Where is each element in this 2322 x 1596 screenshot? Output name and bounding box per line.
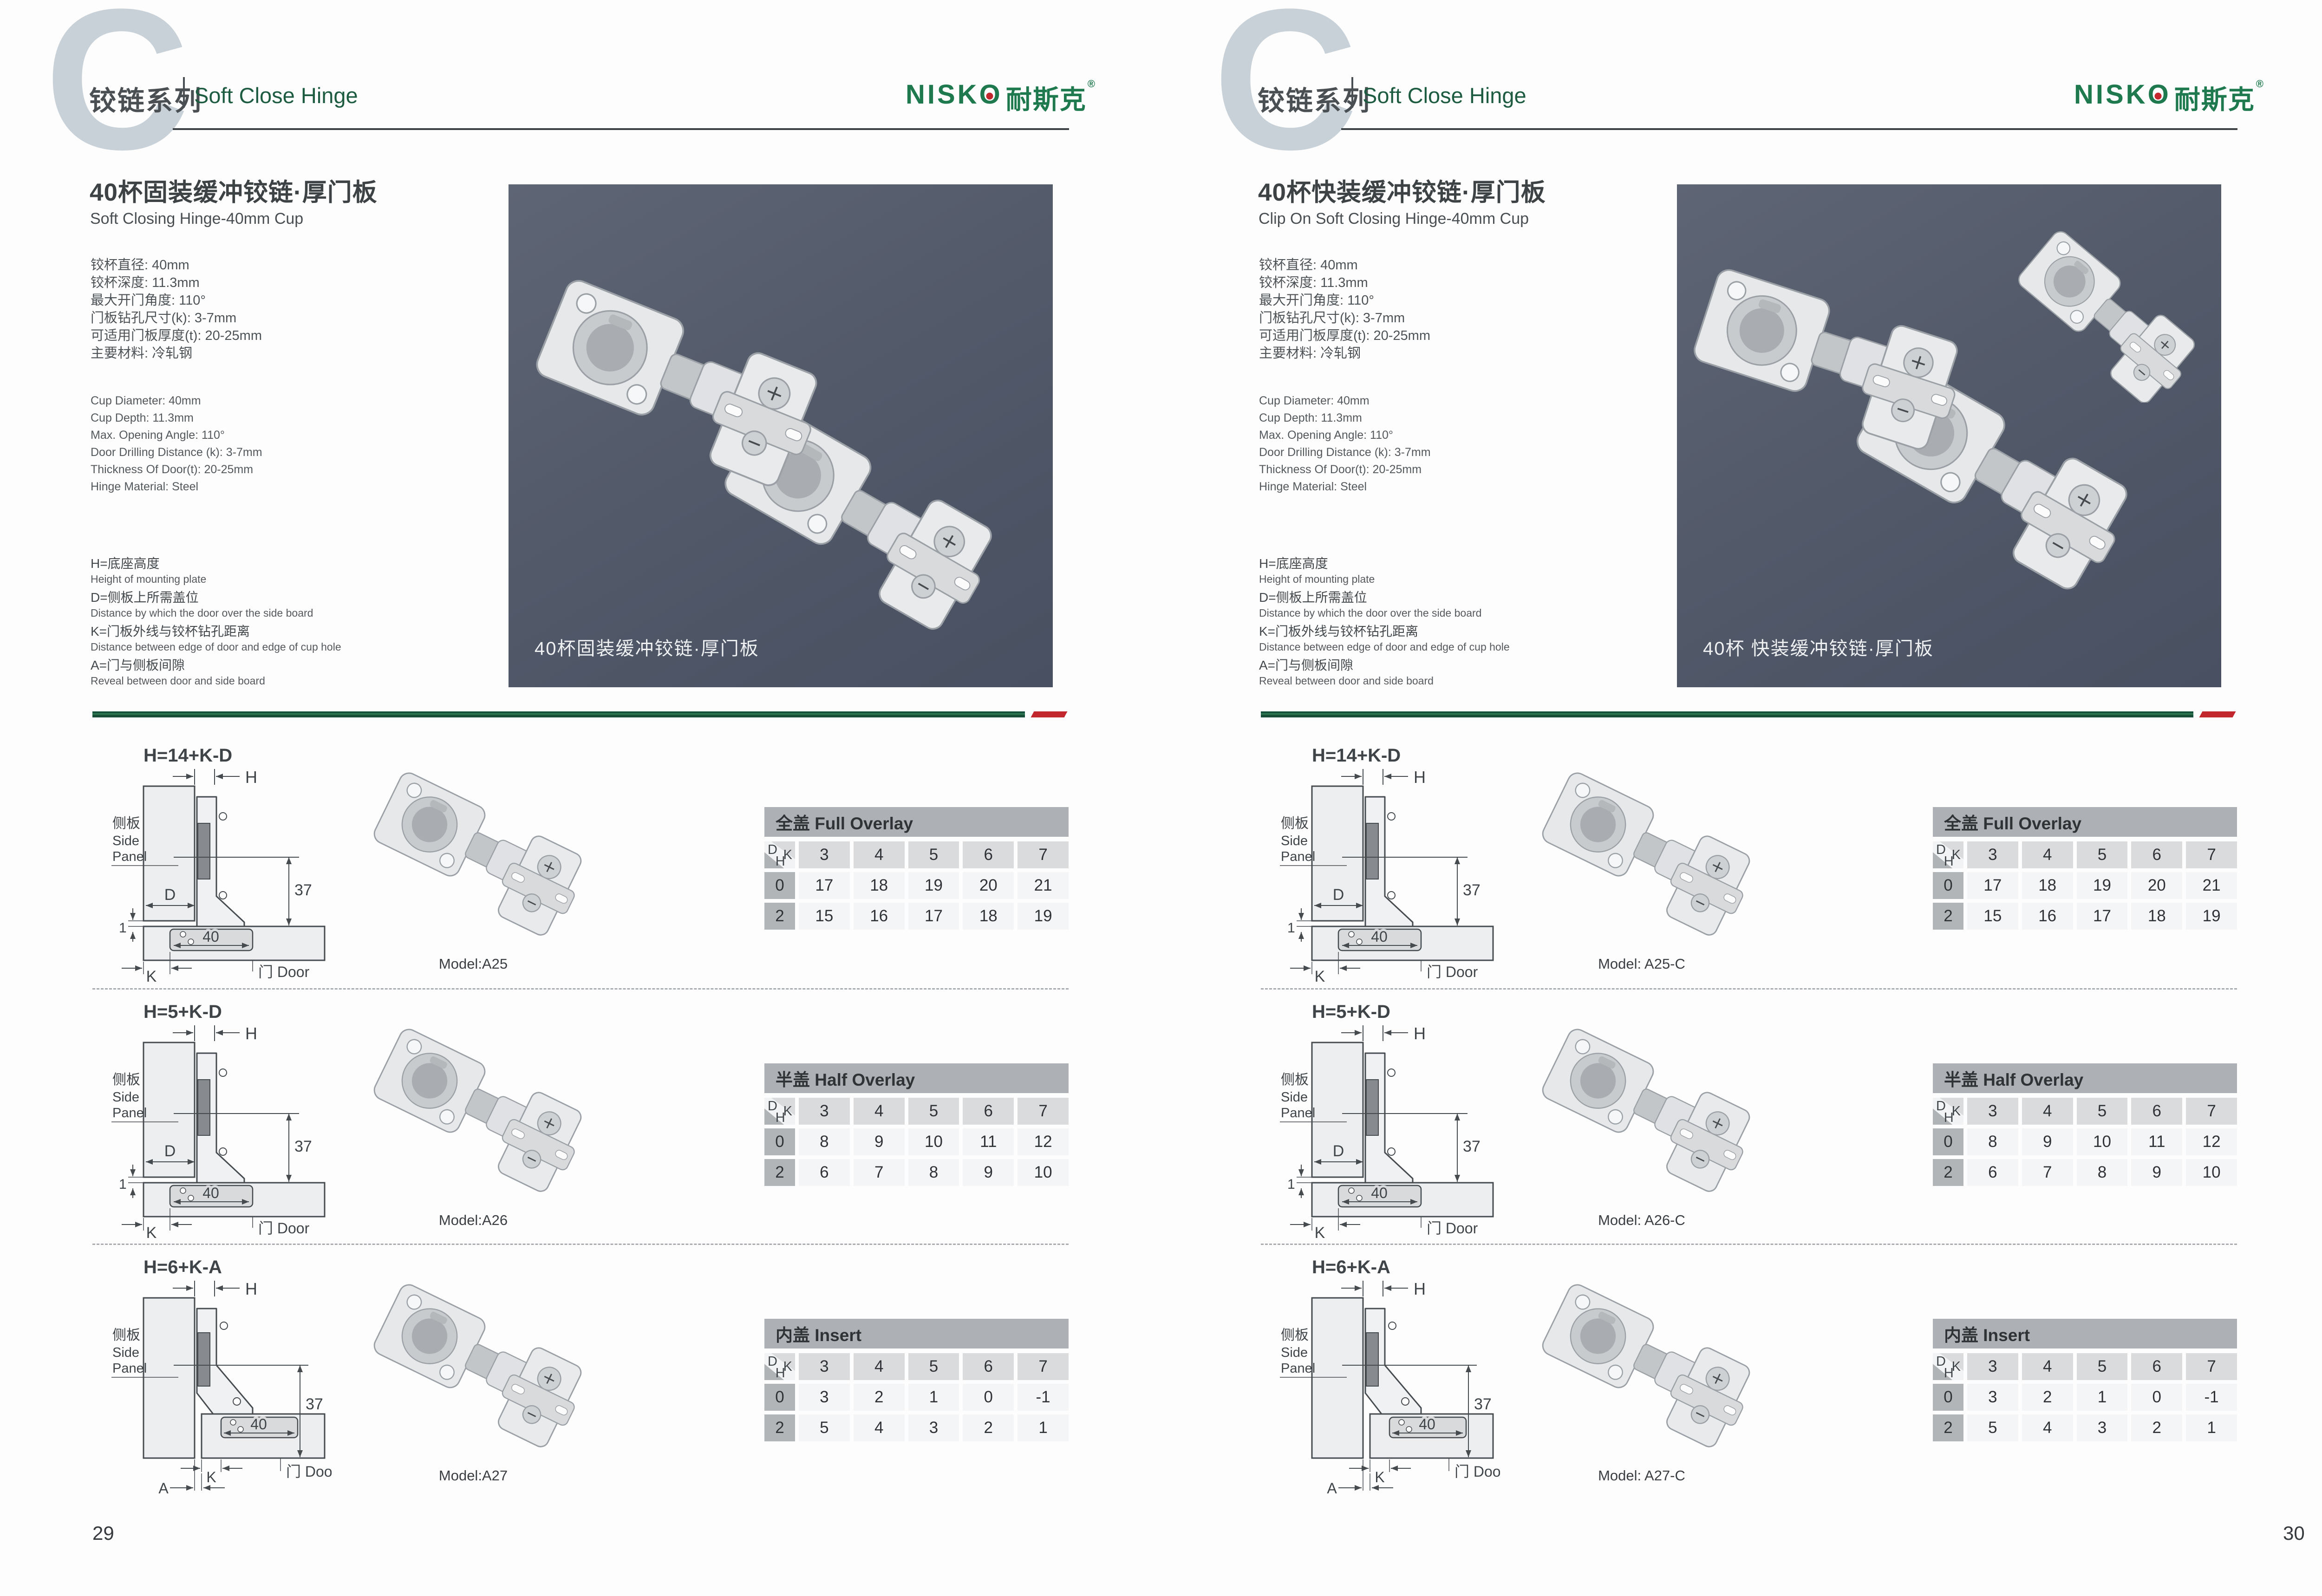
product-photo: 40杯 快装缓冲铰链·厚门板 — [1677, 184, 2221, 687]
corner-label-h: H — [1944, 1110, 1954, 1125]
hinge-product-render — [1519, 756, 1765, 946]
table-cell: 8 — [908, 1159, 959, 1186]
corner-label-h: H — [776, 1366, 785, 1380]
table-row-header: 2 — [764, 1159, 795, 1186]
table-grid: DKH345670891011122678910 — [764, 1098, 1069, 1186]
table-grid: DKH345670171819202121516171819 — [1933, 841, 2237, 930]
svg-text:40: 40 — [202, 928, 219, 945]
page-number: 30 — [2283, 1522, 2305, 1544]
svg-text:40: 40 — [202, 1185, 219, 1201]
hinge-product-render — [350, 756, 596, 946]
svg-text:1: 1 — [119, 1177, 127, 1192]
table-cell: 1 — [1018, 1414, 1069, 1441]
table-col-header: 3 — [1967, 841, 2018, 868]
catalog-page: C 铰链系列 Soft Close Hinge NISK O 耐斯克 ® 40杯… — [1168, 0, 2322, 1596]
dashed-separator — [1261, 988, 2237, 990]
table-corner-cell: DKH — [1933, 1353, 1963, 1380]
table-cell: 10 — [2186, 1159, 2237, 1186]
product-section: H=6+K-AH4037KA门 Door侧板SidePanelModel:A27… — [92, 1254, 1069, 1495]
svg-text:H: H — [245, 1279, 257, 1298]
spec-line-en: Hinge Material: Steel — [91, 478, 262, 495]
table-cell: 16 — [2022, 903, 2073, 930]
model-label: Model:A25 — [350, 956, 596, 972]
table-cell: 9 — [2131, 1159, 2182, 1186]
legend-pair: H=底座高度Height of mounting plate — [91, 555, 341, 586]
table-cell: 2 — [963, 1414, 1014, 1441]
table-cell: 0 — [963, 1384, 1014, 1411]
table-cell: 1 — [2077, 1384, 2128, 1411]
brand-logo-latin: NISK — [2074, 79, 2148, 110]
model-label: Model: A25-C — [1519, 956, 1765, 972]
header-separator — [1351, 77, 1353, 108]
header-separator — [183, 77, 185, 108]
svg-text:1: 1 — [119, 920, 127, 936]
table-cell: 17 — [2077, 903, 2128, 930]
table-cell: 7 — [2022, 1159, 2073, 1186]
table-cell: 18 — [963, 903, 1014, 930]
svg-text:Side: Side — [112, 834, 139, 848]
series-title-en: Soft Close Hinge — [1363, 83, 1526, 108]
svg-text:Side: Side — [1281, 834, 1308, 848]
table-col-header: 6 — [2131, 1098, 2182, 1125]
specs-en: Cup Diameter: 40mmCup Depth: 11.3mmMax. … — [1259, 392, 1431, 495]
svg-text:40: 40 — [1371, 928, 1388, 945]
legend-cn: D=侧板上所需盖位 — [91, 589, 341, 606]
svg-text:门 Door: 门 Door — [1427, 1220, 1478, 1237]
product-section: H=14+K-DH4037D1K门 Door侧板SidePanelModel: … — [1261, 742, 2237, 984]
svg-text:H=6+K-A: H=6+K-A — [1312, 1257, 1390, 1277]
table-cell: 4 — [854, 1414, 905, 1441]
svg-text:门 Door: 门 Door — [1455, 1463, 1500, 1480]
table-cell: 19 — [1018, 903, 1069, 930]
product-section: H=6+K-AH4037KA门 Door侧板SidePanelModel: A2… — [1261, 1254, 2237, 1495]
table-row-header: 2 — [764, 1414, 795, 1441]
svg-text:侧板: 侧板 — [1281, 1072, 1309, 1088]
table-col-header: 4 — [2022, 1098, 2073, 1125]
specs-cn: 铰杯直径: 40mm铰杯深度: 11.3mm最大开门角度: 110°门板钻孔尺寸… — [91, 256, 262, 362]
legend-cn: D=侧板上所需盖位 — [1259, 589, 1510, 606]
svg-text:侧板: 侧板 — [1281, 1328, 1309, 1343]
table-cell: 11 — [963, 1128, 1014, 1155]
catalog-page: C 铰链系列 Soft Close Hinge NISK O 耐斯克 ® 40杯… — [0, 0, 1168, 1596]
table-cell: 0 — [2131, 1384, 2182, 1411]
table-col-header: 4 — [2022, 1353, 2073, 1380]
table-col-header: 3 — [1967, 1353, 2018, 1380]
svg-text:H=6+K-A: H=6+K-A — [143, 1257, 222, 1277]
table-cell: 9 — [2022, 1128, 2073, 1155]
legend-en: Distance by which the door over the side… — [1259, 606, 1510, 620]
hinge-photo-render — [522, 249, 820, 509]
model-label: Model: A26-C — [1519, 1212, 1765, 1229]
svg-text:Panel: Panel — [1281, 1361, 1315, 1376]
svg-text:37: 37 — [294, 881, 312, 899]
table-row-header: 0 — [764, 1128, 795, 1155]
table-col-header: 3 — [799, 1353, 850, 1380]
table-row-header: 2 — [1933, 903, 1963, 930]
spec-line-en: Hinge Material: Steel — [1259, 478, 1431, 495]
table-cell: 8 — [2077, 1159, 2128, 1186]
spec-line-cn: 最大开门角度: 110° — [1259, 292, 1430, 309]
table-cell: 19 — [908, 872, 959, 899]
brand-logo-latin: NISK — [906, 79, 979, 110]
legend-pair: D=侧板上所需盖位Distance by which the door over… — [1259, 589, 1510, 620]
table-col-header: 3 — [799, 841, 850, 868]
product-title-en: Soft Closing Hinge-40mm Cup — [90, 210, 303, 228]
table-cell: 4 — [2022, 1414, 2073, 1441]
table-cell: 16 — [854, 903, 905, 930]
hinge-photo-render — [1682, 235, 1960, 477]
svg-text:1: 1 — [1287, 1177, 1295, 1192]
table-cell: 7 — [854, 1159, 905, 1186]
table-cell: 20 — [963, 872, 1014, 899]
legend-en: Height of mounting plate — [1259, 572, 1510, 586]
installation-diagram: H=14+K-DH4037D1K门 Door侧板SidePanel — [99, 742, 332, 984]
spec-line-en: Thickness Of Door(t): 20-25mm — [1259, 461, 1431, 478]
table-corner-cell: DKH — [764, 1353, 795, 1380]
table-row-header: 0 — [764, 872, 795, 899]
table-corner-cell: DKH — [1933, 841, 1963, 868]
corner-label-h: H — [776, 1110, 785, 1125]
table-col-header: 6 — [2131, 1353, 2182, 1380]
table-corner-cell: DKH — [764, 841, 795, 868]
table-title: 内盖 Insert — [1933, 1319, 2237, 1348]
svg-text:H=5+K-D: H=5+K-D — [1312, 1002, 1390, 1022]
overlay-table: 内盖 InsertDKH3456703210-1254321 — [764, 1319, 1069, 1441]
table-cell: 11 — [2131, 1128, 2182, 1155]
spec-line-cn: 铰杯直径: 40mm — [91, 256, 262, 274]
table-col-header: 5 — [2077, 1098, 2128, 1125]
svg-text:门 Door: 门 Door — [258, 1220, 310, 1237]
svg-text:H: H — [245, 768, 257, 787]
svg-text:K: K — [206, 1469, 216, 1485]
brand-logo-target-icon: O — [2148, 79, 2169, 110]
registered-mark: ® — [1088, 78, 1095, 90]
legend-pair: A=门与侧板间隙Reveal between door and side boa… — [1259, 657, 1510, 688]
legend-pair: K=门板外线与铰杯钻孔距离Distance between edge of do… — [1259, 623, 1510, 654]
table-row-header: 2 — [1933, 1414, 1963, 1441]
legend-cn: K=门板外线与铰杯钻孔距离 — [91, 623, 341, 640]
product-section: H=5+K-DH4037D1K门 Door侧板SidePanelModel:A2… — [92, 998, 1069, 1240]
svg-text:侧板: 侧板 — [1281, 816, 1309, 831]
corner-label-h: H — [776, 854, 785, 868]
svg-text:H=14+K-D: H=14+K-D — [1312, 745, 1401, 766]
svg-text:K: K — [146, 1224, 157, 1240]
table-cell: 3 — [2077, 1414, 2128, 1441]
table-cell: 21 — [2186, 872, 2237, 899]
table-cell: 21 — [1018, 872, 1069, 899]
svg-text:A: A — [158, 1480, 169, 1495]
svg-text:D: D — [164, 886, 176, 904]
svg-text:K: K — [146, 968, 157, 984]
spec-line-cn: 铰杯深度: 11.3mm — [91, 274, 262, 292]
svg-text:40: 40 — [1419, 1416, 1435, 1433]
installation-diagram: H=5+K-DH4037D1K门 Door侧板SidePanel — [99, 998, 332, 1240]
brand-logo-target-icon: O — [979, 79, 1000, 110]
table-cell: 2 — [2022, 1384, 2073, 1411]
table-col-header: 5 — [2077, 1353, 2128, 1380]
legend-en: Distance by which the door over the side… — [91, 606, 341, 620]
svg-text:1: 1 — [1287, 920, 1295, 936]
table-cell: 10 — [1018, 1159, 1069, 1186]
svg-text:侧板: 侧板 — [112, 816, 140, 831]
table-grid: DKH345670171819202121516171819 — [764, 841, 1069, 930]
table-title: 半盖 Half Overlay — [1933, 1063, 2237, 1093]
table-corner-cell: DKH — [1933, 1098, 1963, 1125]
svg-text:H=5+K-D: H=5+K-D — [143, 1002, 222, 1022]
spec-line-en: Cup Depth: 11.3mm — [1259, 410, 1431, 427]
spec-line-en: Max. Opening Angle: 110° — [1259, 427, 1431, 444]
installation-diagram: H=6+K-AH4037KA门 Door侧板SidePanel — [99, 1254, 332, 1495]
table-cell: 19 — [2077, 872, 2128, 899]
svg-text:门 Door: 门 Door — [1427, 964, 1478, 980]
hinge-product-render — [350, 1012, 596, 1203]
svg-text:Panel: Panel — [112, 1106, 147, 1120]
table-col-header: 5 — [908, 1353, 959, 1380]
svg-text:D: D — [1333, 886, 1344, 904]
svg-text:H: H — [245, 1024, 257, 1043]
svg-text:37: 37 — [294, 1138, 312, 1155]
legend-en: Reveal between door and side board — [1259, 674, 1510, 688]
specs-cn: 铰杯直径: 40mm铰杯深度: 11.3mm最大开门角度: 110°门板钻孔尺寸… — [1259, 256, 1430, 362]
ribbon-red — [2199, 711, 2236, 717]
table-title: 内盖 Insert — [764, 1319, 1069, 1348]
table-row-header: 2 — [764, 903, 795, 930]
photo-caption: 40杯固装缓冲铰链·厚门板 — [535, 633, 759, 660]
product-title-en: Clip On Soft Closing Hinge-40mm Cup — [1259, 210, 1529, 228]
legend-pair: D=侧板上所需盖位Distance by which the door over… — [91, 589, 341, 620]
svg-text:A: A — [1327, 1480, 1337, 1495]
table-cell: 12 — [1018, 1128, 1069, 1155]
svg-text:37: 37 — [1474, 1395, 1492, 1413]
table-cell: 6 — [1967, 1159, 2018, 1186]
table-grid: DKH345670891011122678910 — [1933, 1098, 2237, 1186]
table-grid: DKH3456703210-1254321 — [764, 1353, 1069, 1441]
spec-line-cn: 主要材料: 冷轧钢 — [1259, 345, 1430, 362]
table-col-header: 5 — [2077, 841, 2128, 868]
spec-line-en: Door Drilling Distance (k): 3-7mm — [91, 444, 262, 461]
table-cell: 17 — [1967, 872, 2018, 899]
dashed-separator — [1261, 1244, 2237, 1245]
photo-caption: 40杯 快装缓冲铰链·厚门板 — [1703, 633, 1934, 660]
table-grid: DKH3456703210-1254321 — [1933, 1353, 2237, 1441]
table-cell: -1 — [2186, 1384, 2237, 1411]
table-cell: 20 — [2131, 872, 2182, 899]
svg-text:37: 37 — [1463, 1138, 1481, 1155]
svg-text:K: K — [1315, 1224, 1325, 1240]
ribbon-divider — [1261, 711, 2237, 717]
svg-text:D: D — [164, 1142, 176, 1160]
table-cell: 10 — [908, 1128, 959, 1155]
svg-text:门 Door: 门 Door — [258, 964, 310, 980]
overlay-table: 半盖 Half OverlayDKH345670891011122678910 — [1933, 1063, 2237, 1186]
svg-text:H=14+K-D: H=14+K-D — [143, 745, 232, 766]
table-title: 全盖 Full Overlay — [764, 807, 1069, 837]
table-row-header: 0 — [1933, 1128, 1963, 1155]
overlay-table: 全盖 Full OverlayDKH3456701718192021215161… — [1933, 807, 2237, 930]
svg-text:37: 37 — [1463, 881, 1481, 899]
svg-text:H: H — [1414, 1279, 1426, 1298]
table-cell: 3 — [799, 1384, 850, 1411]
legend-en: Distance between edge of door and edge o… — [1259, 640, 1510, 654]
series-title-cn: 铰链系列 — [1258, 79, 1371, 118]
installation-diagram: H=6+K-AH4037KA门 Door侧板SidePanel — [1268, 1254, 1500, 1495]
legend-cn: H=底座高度 — [1259, 555, 1510, 572]
svg-text:K: K — [1375, 1469, 1384, 1485]
dimension-legend: H=底座高度Height of mounting plateD=侧板上所需盖位D… — [91, 555, 341, 691]
product-photo: 40杯固装缓冲铰链·厚门板 — [509, 184, 1053, 687]
page-number: 29 — [92, 1522, 114, 1544]
product-title-cn: 40杯固装缓冲铰链·厚门板 — [90, 173, 378, 208]
table-row-header: 0 — [1933, 872, 1963, 899]
header-rule — [173, 128, 1069, 130]
table-row-header: 2 — [1933, 1159, 1963, 1186]
product-section: H=14+K-DH4037D1K门 Door侧板SidePanelModel:A… — [92, 742, 1069, 984]
spec-line-cn: 可适用门板厚度(t): 20-25mm — [91, 327, 262, 345]
spec-line-cn: 铰杯直径: 40mm — [1259, 256, 1430, 274]
legend-en: Distance between edge of door and edge o… — [91, 640, 341, 654]
overlay-table: 内盖 InsertDKH3456703210-1254321 — [1933, 1319, 2237, 1441]
table-cell: 3 — [908, 1414, 959, 1441]
registered-mark: ® — [2256, 78, 2263, 90]
table-cell: 2 — [2131, 1414, 2182, 1441]
table-cell: 17 — [908, 903, 959, 930]
corner-label-h: H — [1944, 1366, 1954, 1380]
legend-cn: H=底座高度 — [91, 555, 341, 572]
legend-pair: K=门板外线与铰杯钻孔距离Distance between edge of do… — [91, 623, 341, 654]
table-cell: 8 — [799, 1128, 850, 1155]
table-cell: 1 — [2186, 1414, 2237, 1441]
table-col-header: 3 — [1967, 1098, 2018, 1125]
table-col-header: 7 — [2186, 841, 2237, 868]
svg-text:Side: Side — [1281, 1345, 1308, 1360]
table-col-header: 6 — [963, 841, 1014, 868]
table-col-header: 7 — [1018, 1098, 1069, 1125]
svg-text:H: H — [1414, 768, 1426, 787]
svg-text:Side: Side — [112, 1345, 139, 1360]
table-col-header: 6 — [963, 1353, 1014, 1380]
table-col-header: 4 — [854, 1353, 905, 1380]
product-section: H=5+K-DH4037D1K门 Door侧板SidePanelModel: A… — [1261, 998, 2237, 1240]
table-title: 半盖 Half Overlay — [764, 1063, 1069, 1093]
svg-text:Panel: Panel — [112, 849, 147, 864]
table-cell: 5 — [799, 1414, 850, 1441]
table-corner-cell: DKH — [764, 1098, 795, 1125]
svg-text:40: 40 — [250, 1416, 267, 1433]
table-cell: 3 — [1967, 1384, 2018, 1411]
svg-text:Side: Side — [112, 1090, 139, 1105]
series-title-en: Soft Close Hinge — [194, 83, 358, 108]
overlay-table: 全盖 Full OverlayDKH3456701718192021215161… — [764, 807, 1069, 930]
spec-line-en: Cup Diameter: 40mm — [91, 392, 262, 410]
spec-line-cn: 门板钻孔尺寸(k): 3-7mm — [1259, 309, 1430, 327]
table-cell: 15 — [799, 903, 850, 930]
spec-line-cn: 铰杯深度: 11.3mm — [1259, 274, 1430, 292]
table-cell: 1 — [908, 1384, 959, 1411]
table-col-header: 4 — [2022, 841, 2073, 868]
installation-diagram: H=5+K-DH4037D1K门 Door侧板SidePanel — [1268, 998, 1500, 1240]
table-cell: 17 — [799, 872, 850, 899]
svg-text:侧板: 侧板 — [112, 1072, 140, 1088]
spec-line-en: Thickness Of Door(t): 20-25mm — [91, 461, 262, 478]
spec-line-en: Cup Depth: 11.3mm — [91, 410, 262, 427]
legend-pair: A=门与侧板间隙Reveal between door and side boa… — [91, 657, 341, 688]
ribbon-green — [1261, 711, 2193, 717]
spec-line-cn: 主要材料: 冷轧钢 — [91, 345, 262, 362]
table-col-header: 7 — [2186, 1098, 2237, 1125]
legend-cn: A=门与侧板间隙 — [91, 657, 341, 674]
table-col-header: 6 — [963, 1098, 1014, 1125]
table-cell: 15 — [1967, 903, 2018, 930]
spec-line-en: Door Drilling Distance (k): 3-7mm — [1259, 444, 1431, 461]
dimension-legend: H=底座高度Height of mounting plateD=侧板上所需盖位D… — [1259, 555, 1510, 691]
table-title: 全盖 Full Overlay — [1933, 807, 2237, 837]
svg-text:H: H — [1414, 1024, 1426, 1043]
hinge-product-render — [350, 1268, 596, 1458]
svg-text:Panel: Panel — [1281, 849, 1315, 864]
svg-text:门 Door: 门 Door — [286, 1463, 332, 1480]
model-label: Model: A27-C — [1519, 1467, 1765, 1484]
table-col-header: 7 — [1018, 1353, 1069, 1380]
table-cell: -1 — [1018, 1384, 1069, 1411]
svg-text:Panel: Panel — [112, 1361, 147, 1376]
brand-logo-cn: 耐斯克 — [1006, 79, 1087, 117]
svg-text:Side: Side — [1281, 1090, 1308, 1105]
dashed-separator — [92, 988, 1069, 990]
corner-label-h: H — [1944, 854, 1954, 868]
svg-text:K: K — [1315, 968, 1325, 984]
table-col-header: 5 — [908, 841, 959, 868]
series-title-cn: 铰链系列 — [89, 79, 202, 118]
table-row-header: 0 — [764, 1384, 795, 1411]
spec-line-en: Cup Diameter: 40mm — [1259, 392, 1431, 410]
svg-text:37: 37 — [306, 1395, 323, 1413]
table-cell: 18 — [854, 872, 905, 899]
catalog-spread: C 铰链系列 Soft Close Hinge NISK O 耐斯克 ® 40杯… — [0, 0, 2322, 1596]
overlay-table: 半盖 Half OverlayDKH345670891011122678910 — [764, 1063, 1069, 1186]
installation-diagram: H=14+K-DH4037D1K门 Door侧板SidePanel — [1268, 742, 1500, 984]
table-cell: 18 — [2131, 903, 2182, 930]
svg-text:Panel: Panel — [1281, 1106, 1315, 1120]
table-cell: 10 — [2077, 1128, 2128, 1155]
hinge-product-render — [1519, 1012, 1765, 1203]
legend-en: Reveal between door and side board — [91, 674, 341, 688]
spec-line-cn: 最大开门角度: 110° — [91, 292, 262, 309]
table-cell: 18 — [2022, 872, 2073, 899]
dashed-separator — [92, 1244, 1069, 1245]
spec-line-cn: 门板钻孔尺寸(k): 3-7mm — [91, 309, 262, 327]
table-col-header: 7 — [2186, 1353, 2237, 1380]
table-cell: 9 — [963, 1159, 1014, 1186]
ribbon-green — [92, 711, 1025, 717]
table-col-header: 5 — [908, 1098, 959, 1125]
table-col-header: 3 — [799, 1098, 850, 1125]
table-col-header: 7 — [1018, 841, 1069, 868]
table-col-header: 4 — [854, 841, 905, 868]
header-rule — [1341, 128, 2237, 130]
svg-text:D: D — [1333, 1142, 1344, 1160]
model-label: Model:A26 — [350, 1212, 596, 1229]
spec-line-en: Max. Opening Angle: 110° — [91, 427, 262, 444]
table-col-header: 4 — [854, 1098, 905, 1125]
table-cell: 9 — [854, 1128, 905, 1155]
hinge-product-render — [1519, 1268, 1765, 1458]
table-cell: 5 — [1967, 1414, 2018, 1441]
specs-en: Cup Diameter: 40mmCup Depth: 11.3mmMax. … — [91, 392, 262, 495]
svg-text:侧板: 侧板 — [112, 1328, 140, 1343]
model-label: Model:A27 — [350, 1467, 596, 1484]
table-cell: 19 — [2186, 903, 2237, 930]
brand-logo-cn: 耐斯克 — [2174, 79, 2255, 117]
